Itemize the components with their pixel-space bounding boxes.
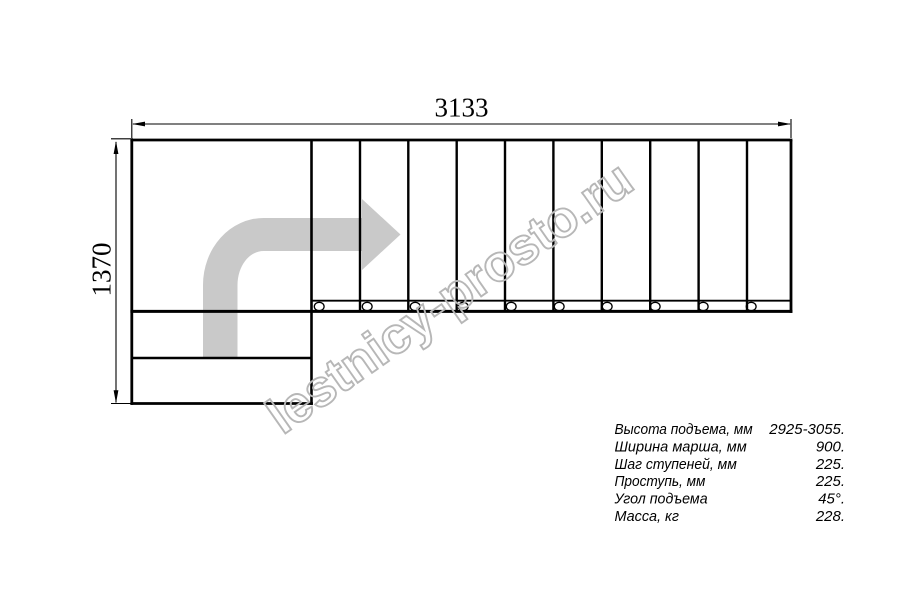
svg-text:3133: 3133	[435, 93, 489, 123]
svg-text:225.: 225.	[815, 473, 845, 490]
svg-text:Высота подъема, мм: Высота подъема, мм	[615, 421, 753, 438]
svg-text:228.: 228.	[815, 508, 845, 525]
svg-text:Проступь, мм: Проступь, мм	[615, 474, 706, 491]
svg-text:45°.: 45°.	[818, 491, 845, 508]
svg-text:1370: 1370	[86, 243, 116, 297]
svg-text:900.: 900.	[816, 438, 845, 455]
svg-text:2925-3055.: 2925-3055.	[768, 421, 845, 438]
svg-text:225.: 225.	[815, 456, 845, 473]
svg-text:Угол подъема: Угол подъема	[614, 491, 708, 508]
svg-text:Масса, кг: Масса, кг	[615, 509, 679, 525]
svg-text:Ширина марша, мм: Ширина марша, мм	[615, 439, 747, 455]
svg-text:Шаг ступеней, мм: Шаг ступеней, мм	[615, 456, 737, 473]
